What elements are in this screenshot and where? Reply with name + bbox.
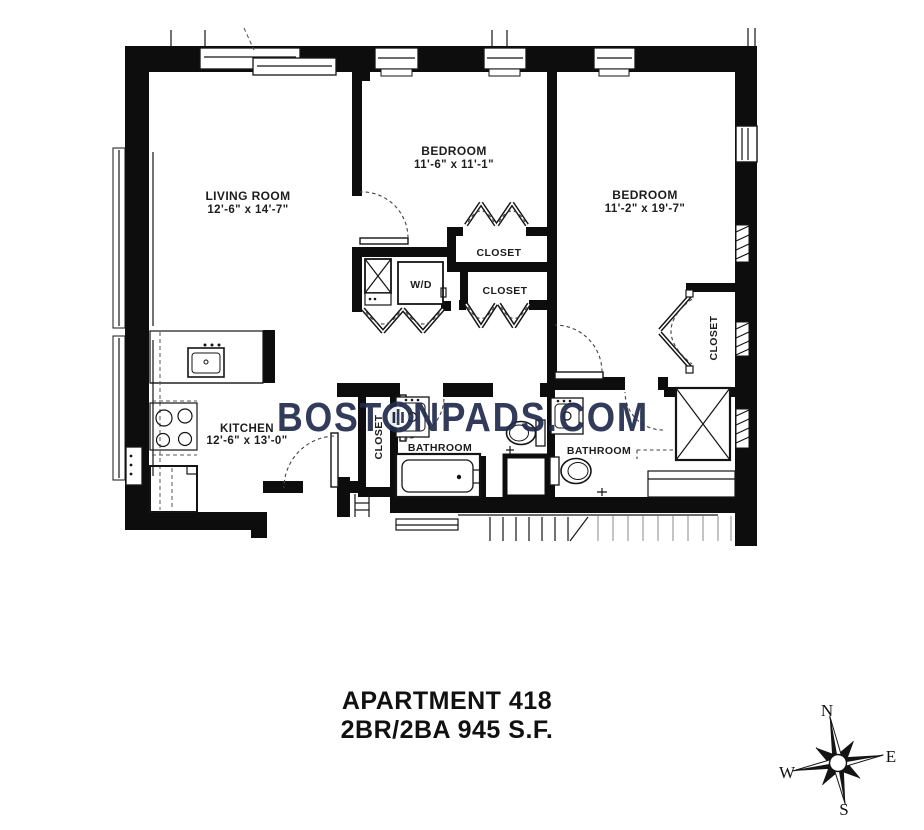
laundry-label: W/D bbox=[410, 279, 432, 291]
watermark-text-prefix: BOST bbox=[277, 394, 383, 440]
closet-2-label: CLOSET bbox=[483, 285, 528, 297]
closet-1-label: CLOSET bbox=[477, 247, 522, 259]
bedroom-2-dims: 11'-2" x 19'-7" bbox=[605, 203, 686, 215]
living-room-dims: 12'-6" x 14'-7" bbox=[207, 204, 288, 216]
bathroom-2-label: BATHROOM bbox=[567, 445, 631, 457]
apartment-subtitle: 2BR/2BA 945 S.F. bbox=[341, 716, 554, 744]
watermark: BOST NPADS.COM bbox=[277, 394, 649, 440]
compass-east-label: E bbox=[886, 747, 896, 766]
kitchen-dims: 12'-6" x 13'-0" bbox=[206, 435, 287, 447]
watermark-text-suffix: NPADS.COM bbox=[413, 394, 649, 440]
kitchen-fixtures bbox=[150, 331, 263, 512]
compass-west-label: W bbox=[779, 763, 796, 782]
bathroom-1-label: BATHROOM bbox=[408, 442, 472, 454]
floor-plan-svg: LIVING ROOM 12'-6" x 14'-7" BEDROOM 11'-… bbox=[0, 0, 924, 830]
wall-hatch bbox=[736, 225, 749, 448]
compass-south-label: S bbox=[839, 800, 848, 819]
floor-plan-page: LIVING ROOM 12'-6" x 14'-7" BEDROOM 11'-… bbox=[0, 0, 924, 830]
bostonpads-logo-o-icon bbox=[385, 404, 411, 430]
apartment-title: APARTMENT 418 bbox=[342, 687, 552, 715]
doors bbox=[284, 192, 677, 488]
bedroom-1-label: BEDROOM bbox=[421, 144, 486, 158]
living-room-label: LIVING ROOM bbox=[205, 189, 290, 203]
compass-rose: N E S W bbox=[779, 701, 896, 819]
bedroom-2-closet-label: CLOSET bbox=[708, 315, 720, 360]
compass-north-label: N bbox=[821, 701, 833, 720]
kitchen-label: KITCHEN bbox=[220, 423, 274, 435]
caption: APARTMENT 418 2BR/2BA 945 S.F. bbox=[341, 687, 554, 744]
bedroom-1-dims: 11'-6" x 11'-1" bbox=[414, 159, 494, 171]
bedroom-2-label: BEDROOM bbox=[612, 188, 677, 202]
laundry-fixtures bbox=[365, 259, 446, 305]
stair-treads bbox=[490, 516, 731, 541]
